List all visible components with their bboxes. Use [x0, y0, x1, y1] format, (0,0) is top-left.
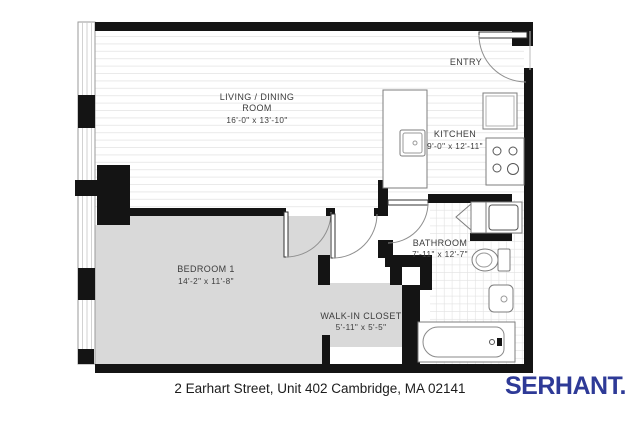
wall-right	[524, 68, 533, 373]
kitchen-sink-icon	[400, 130, 425, 156]
column-c	[78, 268, 95, 300]
shower-basin-icon	[489, 285, 513, 312]
stove-icon	[486, 138, 524, 185]
living-room-label2: ROOM	[242, 103, 272, 113]
wall-nook-left	[318, 255, 330, 285]
bedroom-floor	[95, 216, 330, 364]
bathroom-label: BATHROOM	[413, 238, 468, 248]
bathroom-door-panel	[388, 200, 428, 205]
entry-door-panel	[479, 32, 527, 38]
living-room-dims: 16'-0" x 13'-10"	[226, 116, 287, 125]
wall-hall	[374, 208, 388, 216]
wall-bedroom-top	[130, 208, 286, 216]
vanity-sink-icon	[471, 202, 522, 233]
bedroom-door-panel	[284, 212, 288, 257]
wall-vanity	[470, 233, 512, 241]
floorplan-page: LIVING / DINING ROOM 16'-0" x 13'-10" KI…	[0, 0, 640, 427]
column-a	[78, 95, 95, 128]
toilet-icon	[472, 249, 510, 271]
serhant-logo: SERHANT.	[505, 372, 626, 401]
floorplan-drawing: LIVING / DINING ROOM 16'-0" x 13'-10" KI…	[0, 0, 640, 375]
wall-bath-left	[420, 255, 432, 290]
bedroom-dims: 14'-2" x 11'-8"	[178, 277, 234, 286]
closet-label: WALK-IN CLOSET	[320, 311, 401, 321]
bedroom-label: BEDROOM 1	[177, 264, 235, 274]
wall-closet-stub	[322, 335, 330, 364]
living-room-label: LIVING / DINING	[220, 92, 295, 102]
refrigerator-icon	[483, 93, 517, 129]
column-b	[75, 180, 98, 196]
column-d	[78, 349, 94, 364]
closet-door-panel	[331, 214, 335, 258]
wall-top	[95, 22, 533, 31]
closet-dims: 5'-11" x 5'-5"	[336, 323, 387, 332]
kitchen-dims: 9'-0" x 12'-11"	[427, 142, 483, 151]
wall-closet-right	[402, 285, 420, 364]
bathtub-icon	[418, 322, 515, 362]
wall-bedroom-corner	[97, 165, 130, 225]
kitchen-label: KITCHEN	[434, 129, 476, 139]
wall-bottom	[95, 364, 533, 373]
entry-label: ENTRY	[450, 57, 482, 67]
bathroom-dims: 7'-11" x 12'-7"	[412, 250, 468, 259]
